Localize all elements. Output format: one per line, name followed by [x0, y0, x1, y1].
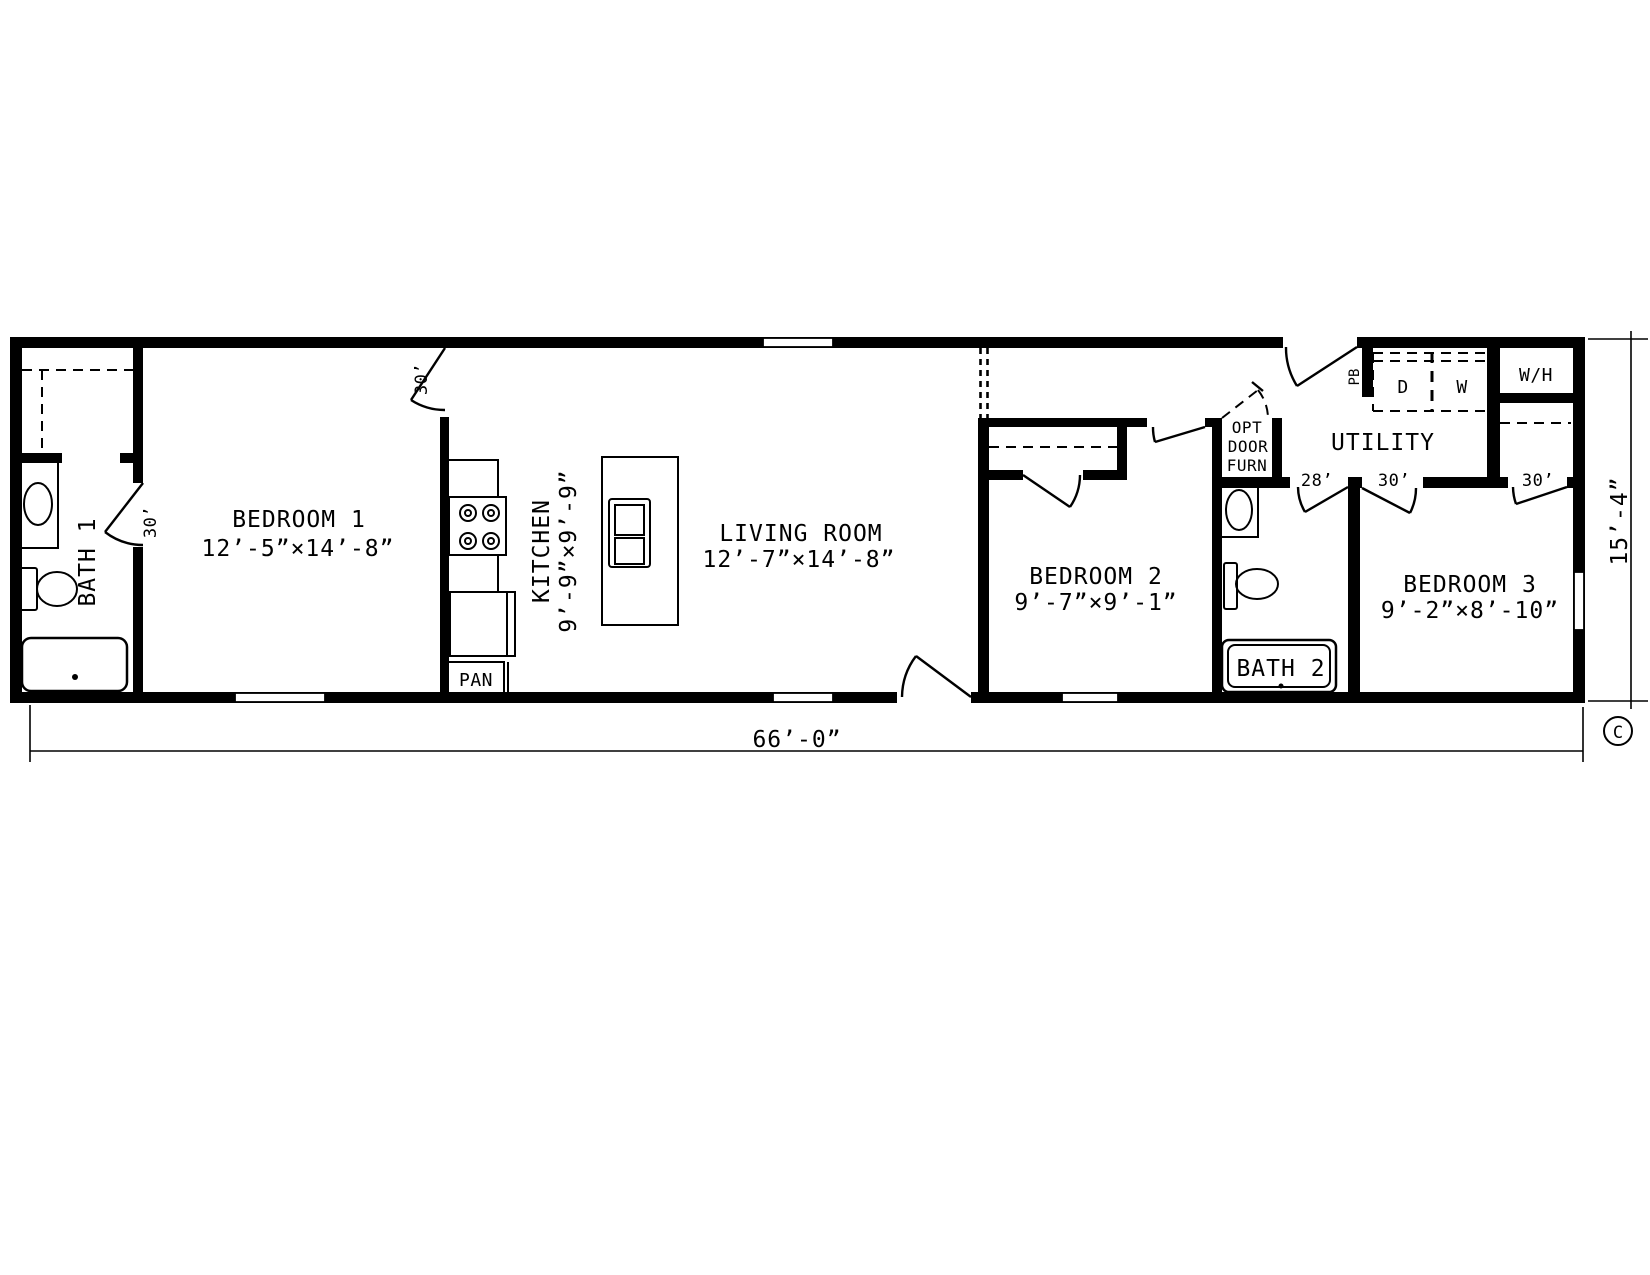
bedroom2-closet-door [1023, 475, 1080, 507]
bedroom3-dims: 9’-2”×8’-10” [1381, 598, 1559, 624]
kitchen-label: KITCHEN [529, 499, 555, 603]
bedroom3-closet-door-size: 30’ [1522, 471, 1554, 491]
bedroom3-door-size: 30’ [1378, 471, 1410, 491]
bedroom2-door [1153, 427, 1205, 442]
overall-height-dimension: 15’-4” [1607, 476, 1633, 565]
bath1-sink-icon [18, 462, 58, 548]
bath2-toilet-icon [1224, 563, 1278, 609]
windows [235, 338, 1584, 702]
stove-icon [449, 497, 506, 555]
bedroom1-label: BEDROOM 1 [232, 507, 366, 533]
bedroom1-door-size: 30’ [412, 363, 432, 395]
front-door-opening [897, 691, 971, 704]
opt-furn-line2: DOOR [1228, 437, 1269, 456]
washer-label: W [1456, 377, 1467, 398]
bath2-label: BATH 2 [1236, 656, 1325, 682]
bedroom2-dims: 9’-7”×9’-1” [1014, 590, 1177, 616]
bath1-label: BATH 1 [75, 517, 101, 606]
bedroom3-door [1362, 488, 1416, 513]
kitchen-counter [448, 460, 498, 592]
window-bottom-bedroom1 [235, 693, 325, 702]
utility-label: UTILITY [1331, 430, 1435, 456]
bedroom3-label: BEDROOM 3 [1403, 572, 1537, 598]
bath1-door-size: 30’ [141, 506, 161, 538]
pantry-label: PAN [459, 670, 493, 691]
bath1-bathtub-icon [22, 638, 127, 691]
bedroom2-label: BEDROOM 2 [1029, 564, 1163, 590]
panel-box-label: PB [1347, 369, 1363, 386]
kitchen-island [602, 457, 678, 625]
optional-wall-dashes [981, 348, 988, 418]
copyright-letter: C [1613, 723, 1623, 743]
fridge-icon [450, 592, 515, 656]
kitchen-dims: 9’-9”×9’-9” [556, 469, 582, 632]
optional-furnace-door-dashed [1222, 382, 1268, 418]
window-top-living [763, 338, 833, 347]
opt-furn-line1: OPT [1232, 418, 1262, 437]
overall-width-dimension: 66’-0” [752, 727, 841, 753]
bath2-door-size: 28’ [1301, 471, 1333, 491]
bath2-sink-icon [1220, 485, 1258, 537]
washer-dryer-area [1373, 352, 1487, 412]
rear-door-opening [1283, 336, 1357, 349]
dryer-label: D [1397, 377, 1408, 398]
bath1-toilet-icon [20, 568, 77, 610]
floor-plan-page: BATH 1 30’ BEDROOM 1 12’-5”×14’-8” 30’ K… [0, 0, 1650, 1275]
living-room-label: LIVING ROOM [719, 521, 882, 547]
water-heater-label: W/H [1519, 365, 1553, 386]
window-bottom-bedroom2 [1062, 693, 1118, 702]
window-right-bedroom3 [1574, 572, 1584, 630]
floor-plan-drawing: BATH 1 30’ BEDROOM 1 12’-5”×14’-8” 30’ K… [0, 0, 1650, 1275]
bedroom1-dims: 12’-5”×14’-8” [201, 536, 394, 562]
opt-furn-line3: FURN [1227, 456, 1268, 475]
living-room-dims: 12’-7”×14’-8” [702, 547, 895, 573]
window-bottom-living [773, 693, 833, 702]
bath1-door [105, 483, 143, 545]
front-entry-door [902, 656, 971, 697]
